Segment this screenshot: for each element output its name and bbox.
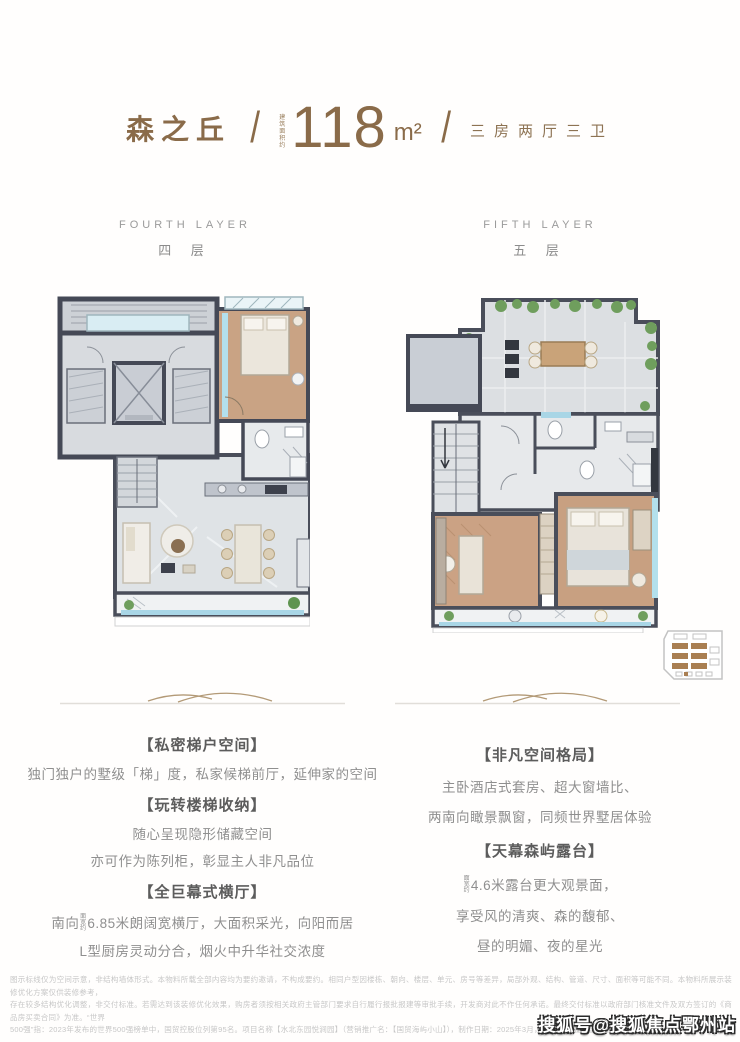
master-bedroom xyxy=(556,494,658,608)
desk xyxy=(459,536,483,594)
area-group: 建筑面积约 118 m² xyxy=(279,99,421,157)
feature-line: 南向面宽约6.85米朗阔宽横厅，大面积采光，向阳而居 xyxy=(15,914,390,932)
area-value: 118 xyxy=(291,99,386,157)
study-room xyxy=(433,514,540,608)
fifth-layer-label-en: FIFTH LAYER xyxy=(415,219,665,231)
bbq-counter xyxy=(505,340,519,378)
fifth-layer-label-cn: 五 层 xyxy=(415,240,665,259)
layout-badge: 三房两厅三卫 xyxy=(470,120,614,141)
fourth-floor-plan xyxy=(57,287,310,627)
open-terrace-outline xyxy=(433,628,643,633)
balcony xyxy=(115,593,310,615)
section-title: 【私密梯户空间】 xyxy=(15,734,390,755)
toilet xyxy=(548,421,562,439)
hill-arc-divider-left xyxy=(60,682,345,706)
slash-divider-1: / xyxy=(250,108,260,148)
bathroom xyxy=(243,421,308,479)
feature-line: 主卧酒店式套房、超大窗墙比、 xyxy=(390,780,690,795)
roof-terrace xyxy=(460,299,658,414)
feature-line-rest: 4.6米露台更大观景面， xyxy=(471,878,617,893)
hill-arc-divider-right xyxy=(395,682,680,706)
plant-icon xyxy=(638,611,648,621)
kitchen-counter xyxy=(205,483,308,496)
feature-line-rest: 6.85米朗阔宽横厅，大面积采光，向阳而居 xyxy=(87,916,353,931)
feature-line: 随心呈现隐形储藏空间 xyxy=(15,827,390,842)
toilet xyxy=(580,461,594,479)
feature-line: 享受风的清爽、森的馥郁、 xyxy=(390,909,690,924)
balcony-glass xyxy=(121,610,304,615)
fifth-layer-label: FIFTH LAYER 五 层 xyxy=(415,219,665,259)
slash-divider-2: / xyxy=(441,108,451,148)
feature-line: 独门独户的墅级「梯」度，私家候梯前厅，延伸家的空间 xyxy=(15,767,390,782)
feature-line: L型厨房灵动分合，烟火中升华社交浓度 xyxy=(15,944,390,959)
section-title: 【天幕森屿露台】 xyxy=(390,840,690,861)
skylight xyxy=(87,315,189,331)
unit-key-map xyxy=(660,627,726,687)
area-prefix-vertical: 建筑面积约 xyxy=(279,115,288,150)
disclaimer-line-1: 图示标线仅为空间示意，非结构墙体形式。本物料所载全部内容均为要约邀请，不构成要约… xyxy=(10,974,732,999)
section-title: 【非凡空间格局】 xyxy=(390,744,690,765)
bookshelf xyxy=(436,518,446,604)
flower-icon xyxy=(595,610,607,622)
feature-line: 面宽约4.6米露台更大观景面， xyxy=(390,876,690,894)
feature-line: 昼的明媚、夜的星光 xyxy=(390,939,690,954)
side-cabinet xyxy=(297,539,310,587)
fourth-layer-label: FOURTH LAYER 四 层 xyxy=(60,219,310,259)
side-shaft-left xyxy=(67,369,105,423)
window-row xyxy=(225,297,303,309)
feature-column-right: 【非凡空间格局】 主卧酒店式套房、超大窗墙比、 两南向瞰景飘窗，同频世界墅居体验… xyxy=(390,732,690,969)
balcony-glass xyxy=(439,622,651,626)
sohu-watermark: 搜狐号@搜狐焦点鄂州站 xyxy=(538,1011,736,1036)
feature-line-pre: 南向 xyxy=(51,916,79,931)
interior-stairs xyxy=(433,422,479,514)
adjacent-roof xyxy=(408,336,480,410)
section-title: 【玩转楼梯收纳】 xyxy=(15,794,390,815)
feature-column-left: 【私密梯户空间】 独门独户的墅级「梯」度，私家候梯前厅，延伸家的空间 【玩转楼梯… xyxy=(15,722,390,971)
dining-table xyxy=(222,525,275,583)
header: 森之丘 / 建筑面积约 118 m² / 三房两厅三卫 xyxy=(0,86,740,170)
fourth-layer-label-cn: 四 层 xyxy=(60,240,310,259)
shower xyxy=(633,464,651,486)
area-unit: m² xyxy=(394,119,422,147)
plant-icon xyxy=(124,600,134,610)
open-terrace-outline xyxy=(115,617,310,626)
plant-icon xyxy=(444,611,454,621)
project-name: 森之丘 xyxy=(126,108,231,148)
bedroom xyxy=(217,297,308,421)
fourth-layer-label-en: FOURTH LAYER xyxy=(60,219,310,231)
page-background: 森之丘 / 建筑面积约 118 m² / 三房两厅三卫 FOURTH LAYER… xyxy=(0,0,740,1042)
feature-line: 两南向瞰景飘窗，同频世界墅居体验 xyxy=(390,810,690,825)
wardrobe xyxy=(540,514,556,594)
interior-stairs xyxy=(117,457,157,507)
plant-icon xyxy=(288,597,300,609)
side-shaft-right xyxy=(173,369,210,423)
tiny-note: 面宽约 xyxy=(463,876,471,894)
fifth-floor-plan xyxy=(405,298,660,633)
feature-line: 亦可作为陈列柜，彰显主人非凡品位 xyxy=(15,854,390,869)
elevator-stair-core xyxy=(60,299,217,457)
balcony xyxy=(433,608,656,626)
tv-cabinet xyxy=(633,510,651,550)
section-title: 【全巨幕式横厅】 xyxy=(15,881,390,902)
